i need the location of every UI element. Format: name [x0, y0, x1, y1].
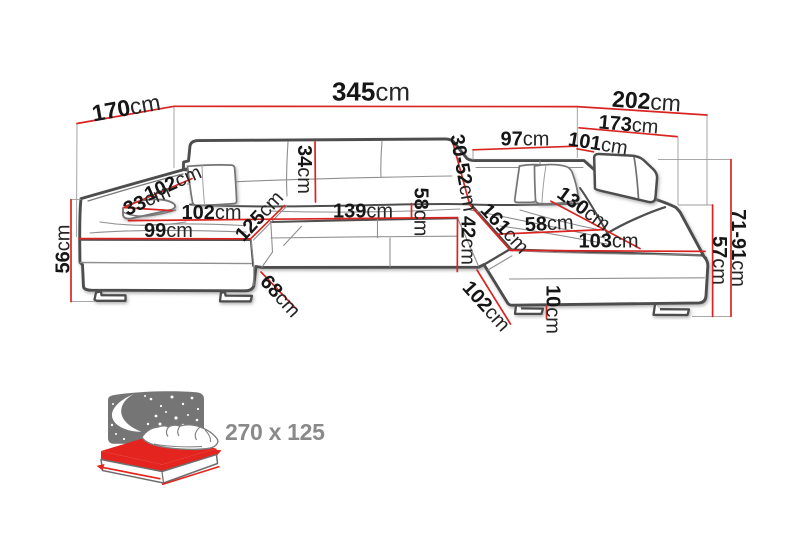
svg-text:139cm: 139cm: [333, 201, 393, 223]
svg-text:202cm: 202cm: [611, 86, 682, 117]
svg-text:270 x 125: 270 x 125: [225, 419, 325, 445]
svg-text:56cm: 56cm: [53, 225, 75, 274]
svg-text:10cm: 10cm: [542, 285, 564, 334]
svg-text:42cm: 42cm: [457, 216, 479, 265]
svg-text:99cm: 99cm: [144, 220, 193, 242]
svg-text:97cm: 97cm: [501, 129, 550, 151]
svg-text:58cm: 58cm: [524, 212, 574, 237]
svg-text:57cm: 57cm: [708, 236, 730, 285]
svg-text:34cm: 34cm: [293, 145, 315, 194]
svg-text:58cm: 58cm: [410, 188, 432, 237]
svg-text:345cm: 345cm: [332, 77, 410, 107]
svg-text:103cm: 103cm: [578, 231, 638, 253]
